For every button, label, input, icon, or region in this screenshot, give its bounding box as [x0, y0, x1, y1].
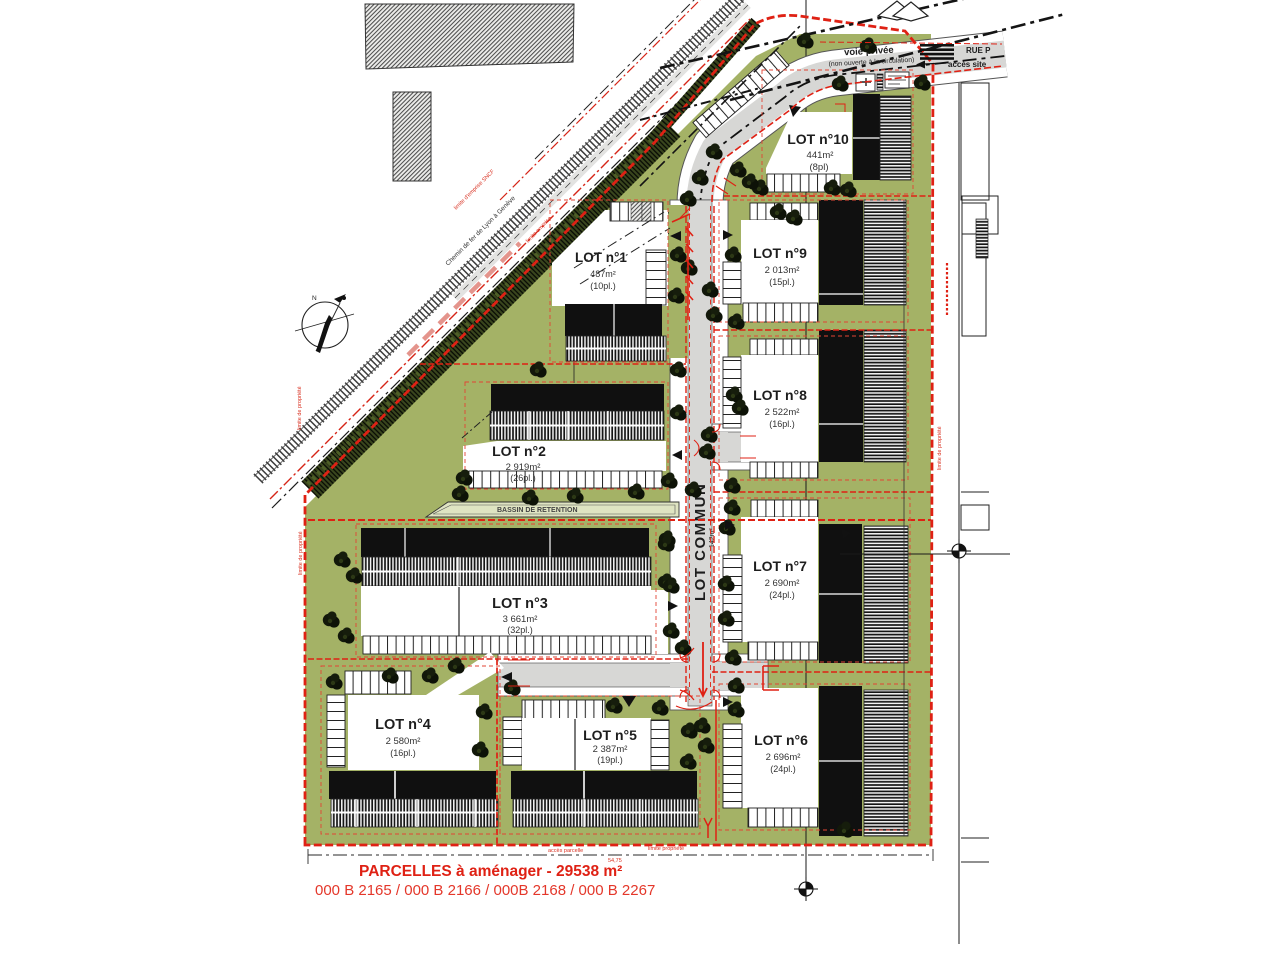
svg-text:441m²: 441m² — [807, 150, 834, 161]
svg-text:BASSIN DE RETENTION: BASSIN DE RETENTION — [497, 507, 578, 514]
svg-text:accès parcelle: accès parcelle — [548, 848, 583, 854]
svg-text:(16pl.): (16pl.) — [769, 419, 795, 429]
svg-text:accès site: accès site — [948, 60, 987, 69]
svg-text:2 387m²: 2 387m² — [593, 744, 628, 755]
svg-text:000 B 2165 / 000 B 2166 / 000B: 000 B 2165 / 000 B 2166 / 000B 2168 / 00… — [315, 882, 655, 899]
svg-text:LOT n°6: LOT n°6 — [754, 732, 808, 748]
svg-text:LOT n°5: LOT n°5 — [583, 727, 637, 743]
svg-text:RUE P: RUE P — [966, 46, 991, 55]
svg-text:limite de propriété: limite de propriété — [297, 386, 303, 430]
svg-text:(10pl.): (10pl.) — [590, 281, 616, 291]
svg-text:LOT n°9: LOT n°9 — [753, 245, 807, 261]
svg-text:2 580m²: 2 580m² — [386, 736, 421, 747]
svg-text:(8pl): (8pl) — [809, 162, 828, 173]
svg-text:LOT n°10: LOT n°10 — [787, 131, 849, 147]
svg-text:3 661m²: 3 661m² — [503, 614, 538, 625]
svg-text:LOT n°4: LOT n°4 — [375, 717, 431, 733]
svg-text:limite de propriété: limite de propriété — [298, 531, 304, 575]
svg-text:LOT n°8: LOT n°8 — [753, 387, 807, 403]
svg-text:LOT COMMUN: LOT COMMUN — [692, 483, 709, 601]
svg-text:N: N — [312, 295, 317, 302]
svg-text:2 013m²: 2 013m² — [765, 265, 800, 276]
svg-text:(24pl.): (24pl.) — [769, 590, 795, 600]
svg-text:(19pl.): (19pl.) — [597, 755, 623, 765]
svg-text:2 696m²: 2 696m² — [766, 752, 801, 763]
svg-text:(26pl.): (26pl.) — [510, 473, 536, 483]
svg-text:(32pl.): (32pl.) — [507, 625, 533, 635]
svg-text:limite propriété: limite propriété — [648, 846, 684, 852]
svg-text:(24pl.): (24pl.) — [770, 764, 796, 774]
svg-text:487m²: 487m² — [590, 269, 616, 279]
svg-text:LOT n°3: LOT n°3 — [492, 596, 548, 612]
svg-text:2 690m²: 2 690m² — [765, 578, 800, 589]
svg-text:(15pl.): (15pl.) — [769, 277, 795, 287]
svg-text:limite de propriété: limite de propriété — [937, 426, 943, 470]
svg-text:LOT n°1: LOT n°1 — [575, 250, 627, 265]
svg-text:(16pl.): (16pl.) — [390, 748, 416, 758]
svg-text:2 522m²: 2 522m² — [765, 407, 800, 418]
svg-text:LOT n°7: LOT n°7 — [753, 558, 807, 574]
svg-text:54,75: 54,75 — [608, 858, 622, 864]
svg-text:LOT n°2: LOT n°2 — [492, 443, 546, 459]
svg-text:PARCELLES à aménager - 29538 m: PARCELLES à aménager - 29538 m² — [359, 863, 622, 880]
